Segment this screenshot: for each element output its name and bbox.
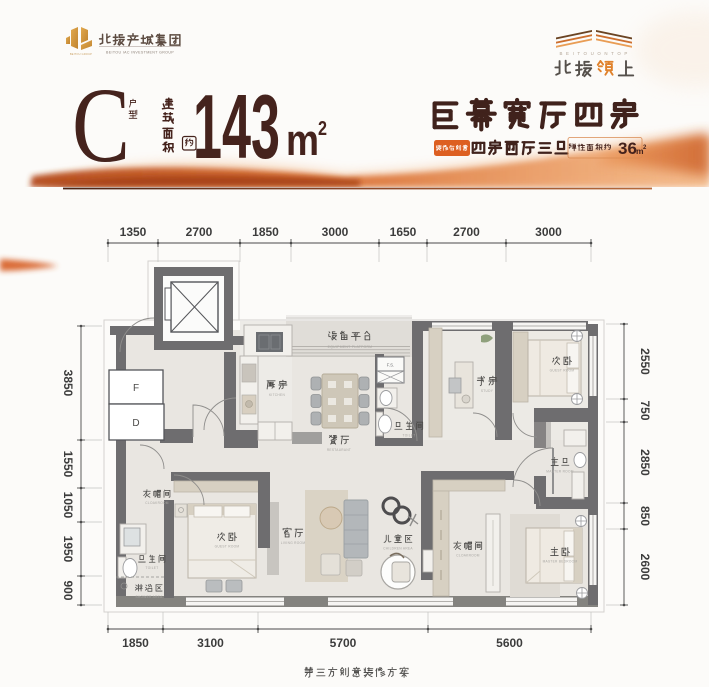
svg-text:RESTAURANT: RESTAURANT [327,448,351,452]
svg-text:2700: 2700 [453,225,480,239]
svg-text:CLOAKROOM: CLOAKROOM [145,501,168,505]
svg-text:2700: 2700 [186,225,213,239]
svg-text:3850: 3850 [61,370,75,397]
svg-text:KITCHEN: KITCHEN [269,393,285,397]
svg-text:F: F [133,383,139,394]
svg-text:BEITOU IAC INVESTMENT GROUP: BEITOU IAC INVESTMENT GROUP [106,51,174,55]
svg-text:C: C [72,67,130,185]
svg-text:5700: 5700 [330,636,357,650]
svg-text:1550: 1550 [61,451,75,478]
svg-text:MASTER BEDROOM: MASTER BEDROOM [543,560,578,564]
svg-text:TOILET: TOILET [146,566,159,570]
svg-text:SHOWER AREA: SHOWER AREA [135,595,163,599]
svg-text:STUDY: STUDY [481,389,494,393]
svg-text:1650: 1650 [390,225,417,239]
svg-text:5600: 5600 [496,636,523,650]
svg-text:1350: 1350 [120,225,147,239]
svg-text:m: m [286,116,319,165]
svg-text:36: 36 [618,139,637,158]
svg-text:GUEST ROOM: GUEST ROOM [215,545,240,549]
svg-text:2550: 2550 [638,348,652,375]
svg-text:MASTER ROOM: MASTER ROOM [546,469,573,473]
svg-text:CHILDREN AREA: CHILDREN AREA [383,546,413,550]
svg-text:900: 900 [61,580,75,600]
svg-text:CLOAKROOM: CLOAKROOM [456,553,479,557]
svg-text:D: D [132,418,139,429]
svg-text:1850: 1850 [122,636,149,650]
svg-text:EQUIPMENT PLATFORM: EQUIPMENT PLATFORM [328,345,373,349]
svg-text:750: 750 [638,400,652,420]
svg-text:1850: 1850 [252,225,279,239]
svg-text:3000: 3000 [535,225,562,239]
svg-text:3100: 3100 [197,636,224,650]
svg-text:3000: 3000 [322,225,349,239]
svg-text:B E I T O U O N T O P: B E I T O U O N T O P [559,51,628,56]
svg-text:LIVING ROOM: LIVING ROOM [281,541,306,545]
svg-text:2850: 2850 [638,449,652,476]
svg-text:850: 850 [638,506,652,526]
svg-text:GUEST ROOM: GUEST ROOM [550,369,575,373]
svg-text:2: 2 [318,118,327,140]
svg-text:2600: 2600 [638,554,652,581]
svg-text:143: 143 [193,77,280,178]
svg-text:1050: 1050 [61,492,75,519]
svg-text:BEITOU GROUP: BEITOU GROUP [70,52,92,56]
svg-text:TOILET: TOILET [403,433,416,437]
svg-text:F.S.: F.S. [387,363,395,368]
svg-text:1950: 1950 [61,536,75,563]
